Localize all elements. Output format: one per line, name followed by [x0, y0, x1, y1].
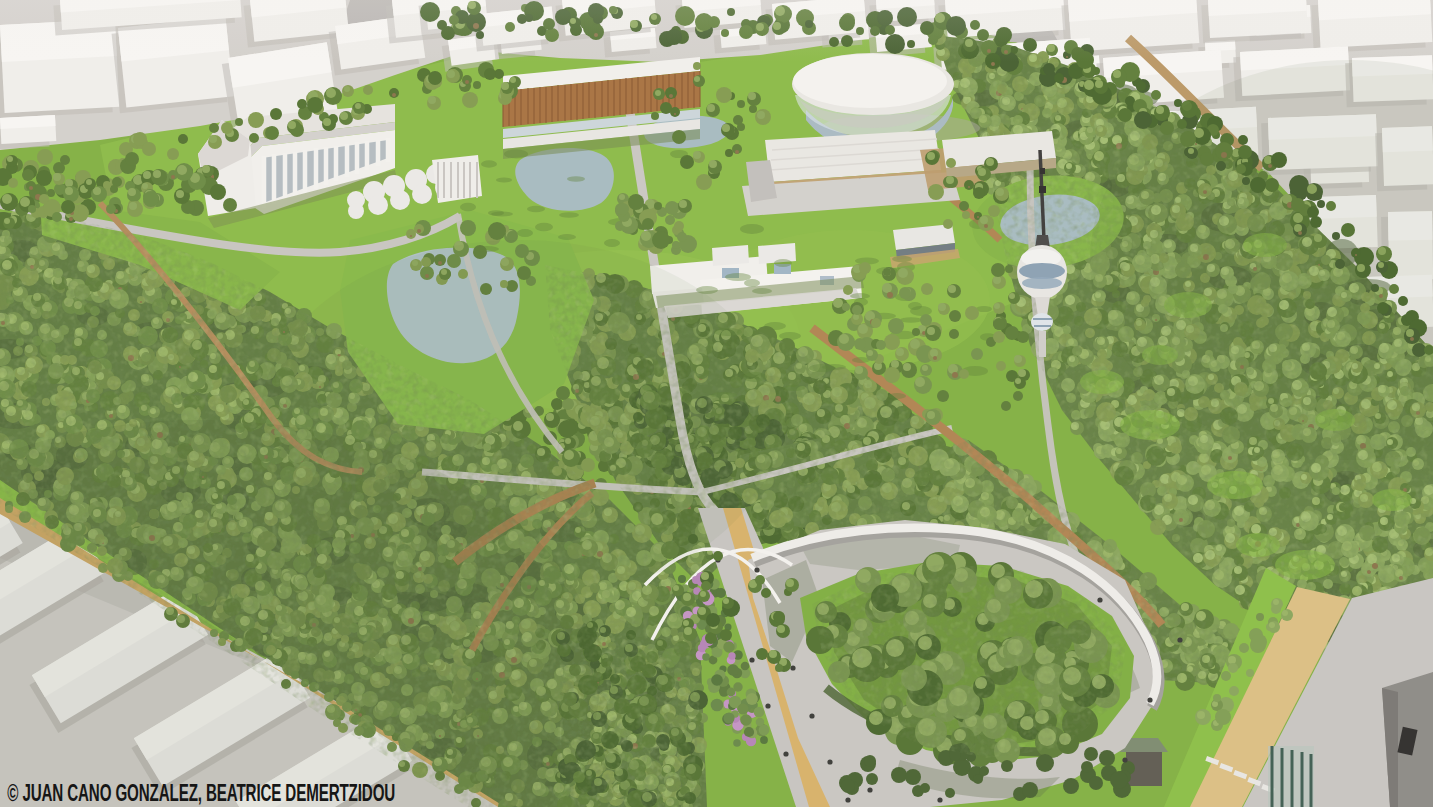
svg-text:© JUAN CANO GONZALEZ, BEATRICE: © JUAN CANO GONZALEZ, BEATRICE DEMERTZID…: [7, 780, 395, 806]
